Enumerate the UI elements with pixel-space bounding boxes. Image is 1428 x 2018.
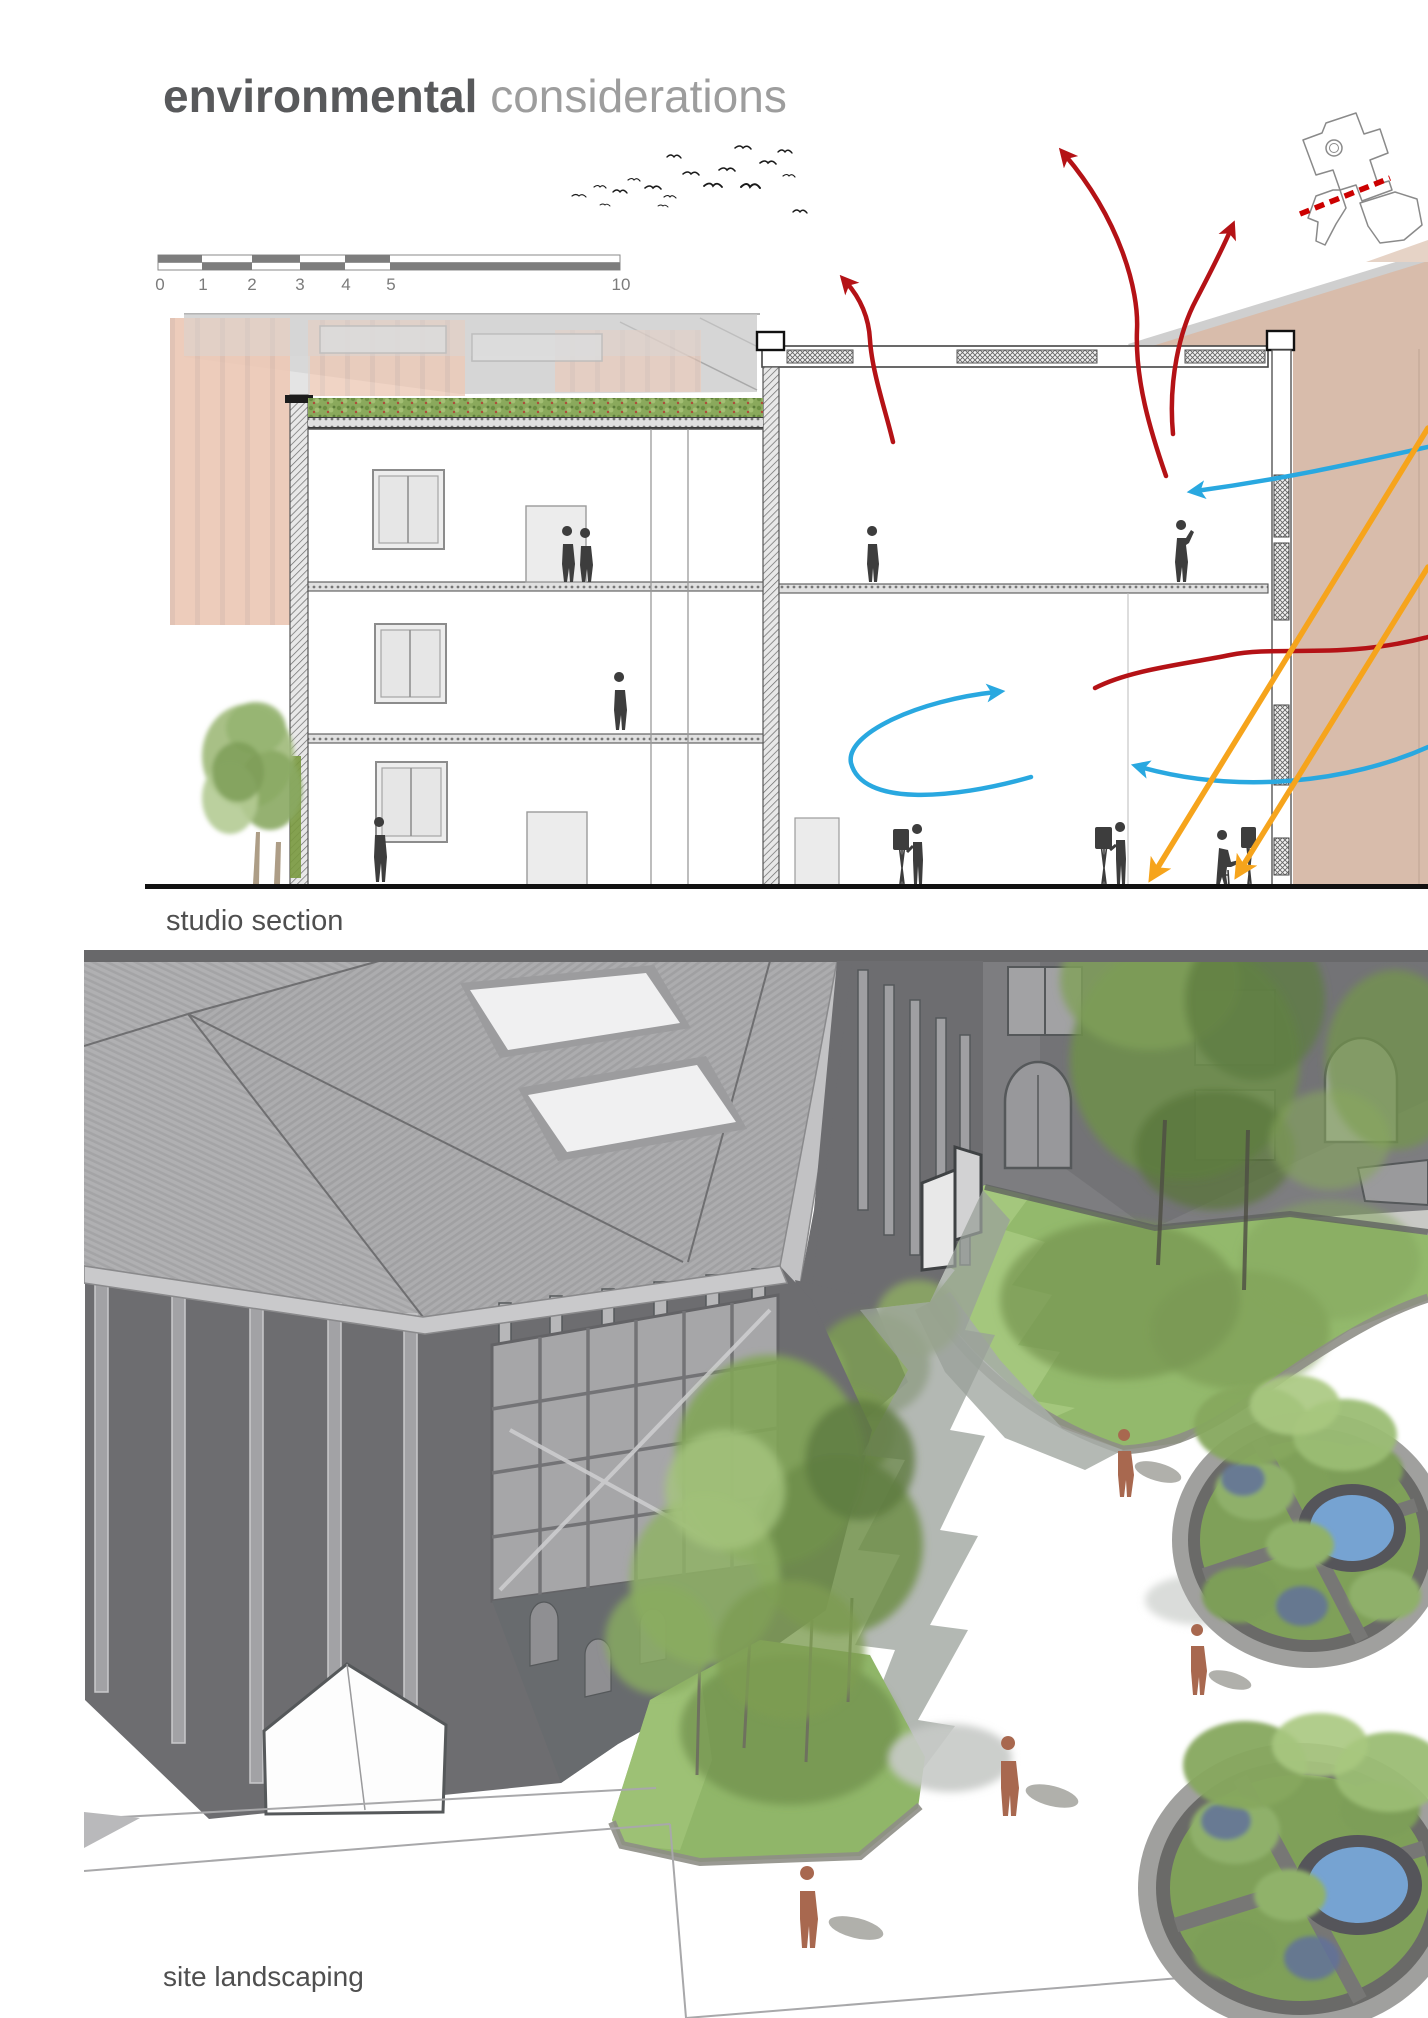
svg-text:environmental considerations: environmental considerations (163, 70, 787, 122)
svg-text:5: 5 (386, 275, 395, 294)
svg-text:2: 2 (247, 275, 256, 294)
svg-text:3: 3 (295, 275, 304, 294)
svg-text:4: 4 (341, 275, 350, 294)
svg-text:0: 0 (155, 275, 164, 294)
svg-text:10: 10 (612, 275, 631, 294)
svg-text:studio section: studio section (166, 905, 343, 937)
svg-text:site landscaping: site landscaping (163, 1961, 364, 1992)
svg-text:1: 1 (198, 275, 207, 294)
